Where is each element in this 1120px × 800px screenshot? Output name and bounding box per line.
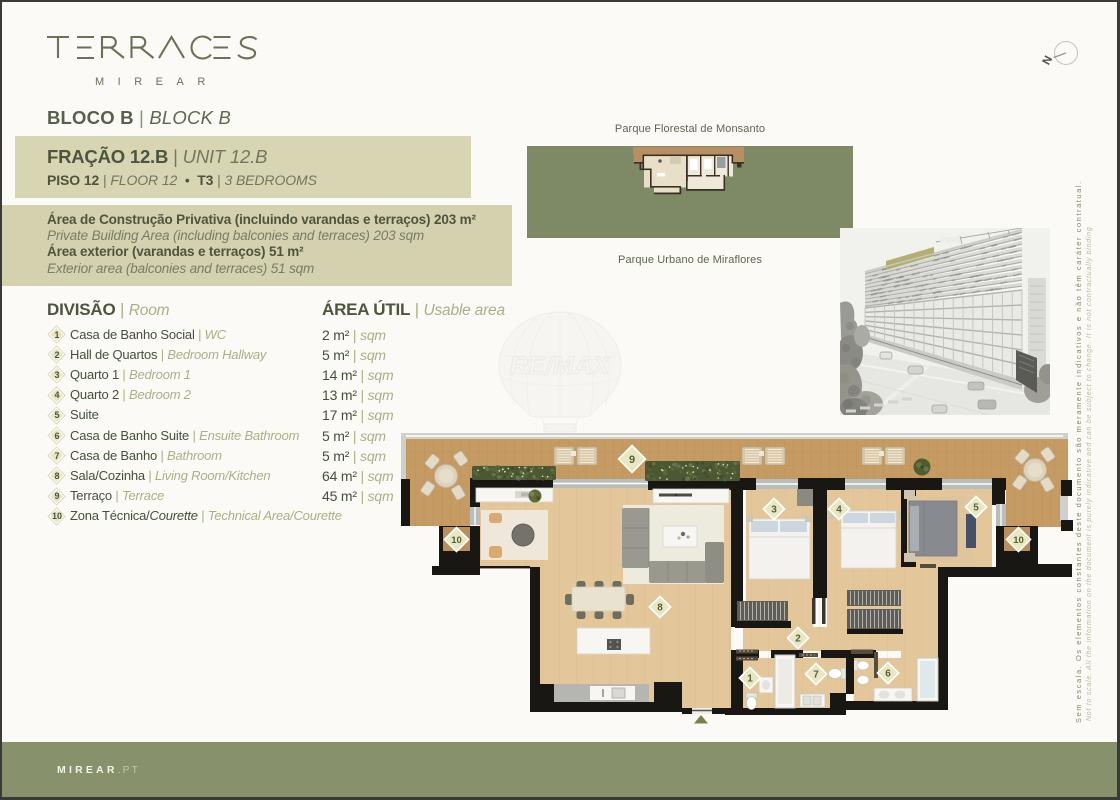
svg-text:2: 2: [795, 634, 801, 645]
svg-text:4: 4: [836, 505, 842, 516]
svg-text:MIREAR: MIREAR: [95, 76, 219, 88]
svg-text:8: 8: [657, 603, 663, 614]
svg-text:9: 9: [629, 454, 635, 466]
svg-text:10: 10: [1013, 535, 1024, 546]
svg-text:1: 1: [747, 674, 753, 685]
svg-text:10: 10: [451, 535, 462, 546]
svg-text:6: 6: [885, 669, 891, 680]
svg-text:RE/MAX: RE/MAX: [510, 352, 611, 380]
svg-text:7: 7: [813, 670, 819, 681]
svg-text:N: N: [1041, 54, 1055, 67]
svg-text:5: 5: [973, 503, 979, 514]
svg-text:3: 3: [771, 505, 777, 516]
